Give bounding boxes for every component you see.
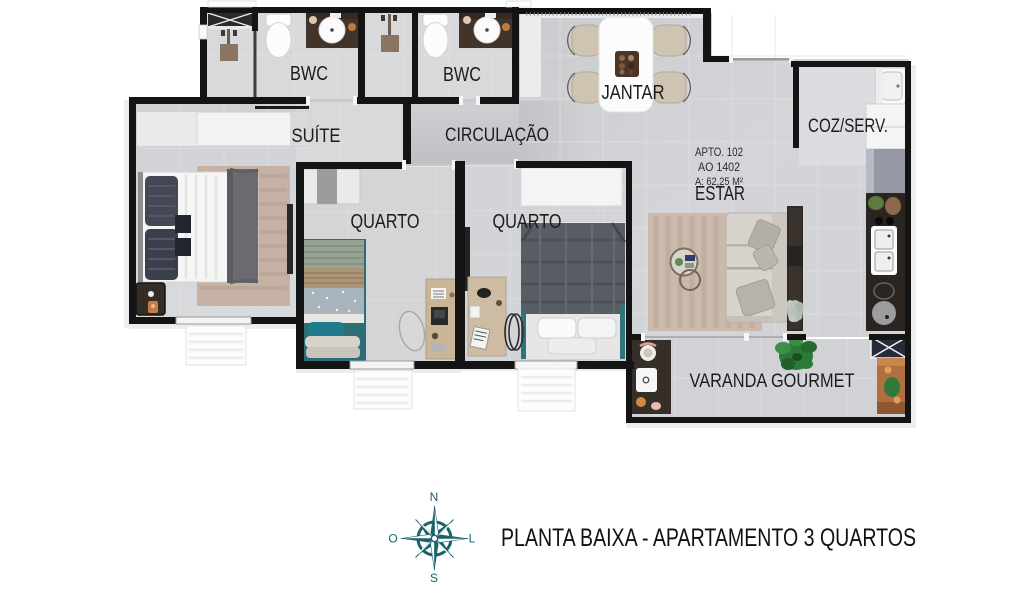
svg-text:S: S (430, 571, 438, 585)
svg-text:COZ/SERV.: COZ/SERV. (808, 116, 888, 137)
svg-text:O: O (388, 532, 397, 546)
svg-text:BWC: BWC (443, 64, 481, 86)
svg-text:BWC: BWC (290, 63, 328, 85)
svg-text:QUARTO: QUARTO (351, 211, 420, 233)
svg-text:QUARTO: QUARTO (493, 211, 562, 233)
svg-text:AO 1402: AO 1402 (698, 160, 740, 174)
svg-text:PLANTA BAIXA - APARTAMENTO 3: PLANTA BAIXA - APARTAMENTO 3 QUARTOS (501, 524, 916, 552)
svg-text:ESTAR: ESTAR (695, 183, 745, 205)
svg-text:APTO. 102: APTO. 102 (695, 145, 743, 159)
svg-text:L: L (469, 532, 476, 546)
svg-text:VARANDA GOURMET: VARANDA GOURMET (690, 371, 855, 392)
svg-text:N: N (430, 490, 439, 504)
svg-text:CIRCULAÇÃO: CIRCULAÇÃO (445, 124, 549, 146)
svg-text:SUÍTE: SUÍTE (292, 126, 341, 147)
svg-text:JANTAR: JANTAR (602, 82, 665, 104)
